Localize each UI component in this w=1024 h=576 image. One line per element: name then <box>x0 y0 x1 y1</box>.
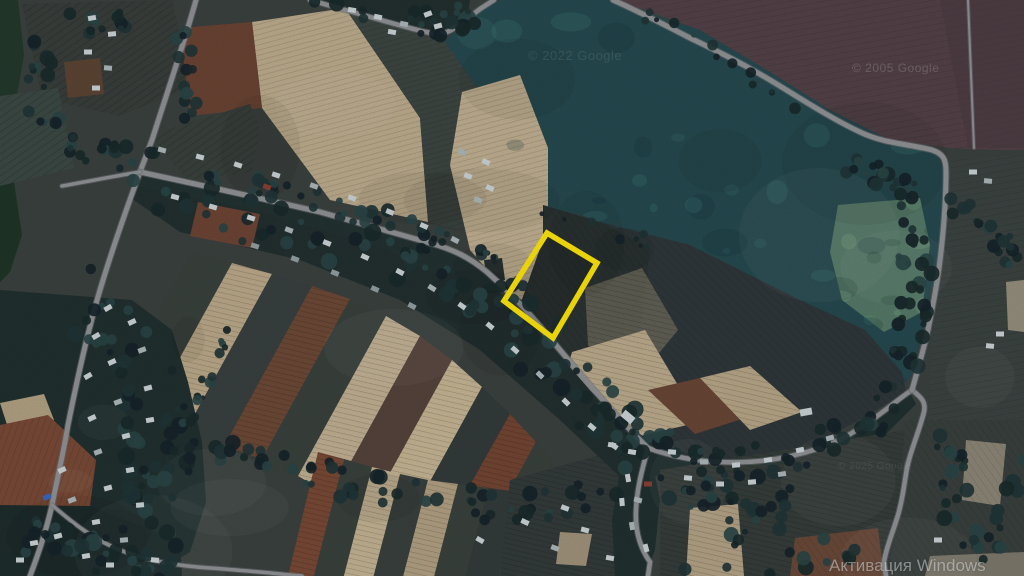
grain-overlay <box>0 0 1024 576</box>
satellite-imagery-canvas[interactable] <box>0 0 1024 576</box>
satellite-map-view[interactable]: © 2022 Google © 2005 Google © 2025 Googl… <box>0 0 1024 576</box>
